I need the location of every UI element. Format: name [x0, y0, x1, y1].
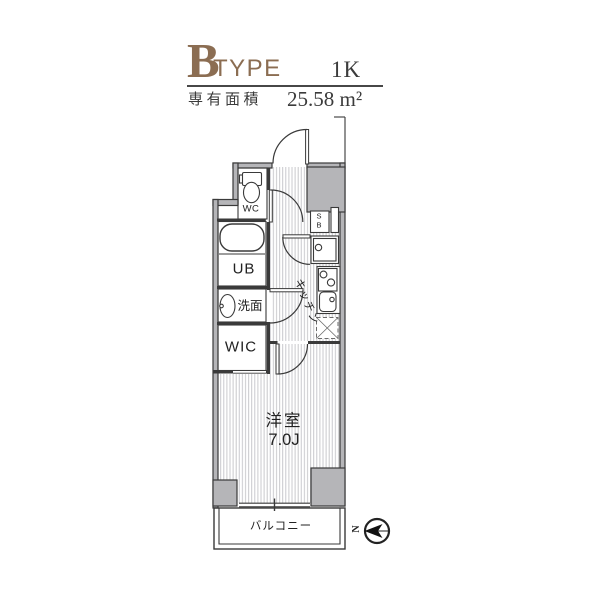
- kitchen-sink-unit-icon: [311, 236, 339, 264]
- room-label-washroom: 洗面: [237, 300, 262, 313]
- stove-icon: [319, 269, 338, 292]
- compass-icon: [364, 519, 390, 543]
- bathtub-icon: [219, 224, 265, 254]
- sink-icon: [320, 292, 337, 312]
- room-label-bath: UB: [233, 262, 256, 277]
- room-label-wc: WC: [243, 204, 260, 214]
- toilet-icon: [240, 173, 262, 203]
- corridor-boundary-lines: [334, 117, 345, 163]
- room-label-main: 洋室: [266, 413, 303, 430]
- compass-north-label: N: [352, 525, 362, 532]
- washbasin-icon: [220, 295, 235, 318]
- room-label-balcony: バルコニー: [250, 521, 312, 533]
- entrance-door: [273, 130, 309, 165]
- room-size-label: 7.0J: [268, 432, 299, 449]
- shoe-box-label: SB: [315, 213, 324, 230]
- floorplan-page: B TYPE 1K 専有面積 25.58 m²: [0, 0, 604, 600]
- closet-door: [233, 371, 266, 374]
- room-label-closet: WIC: [225, 340, 257, 355]
